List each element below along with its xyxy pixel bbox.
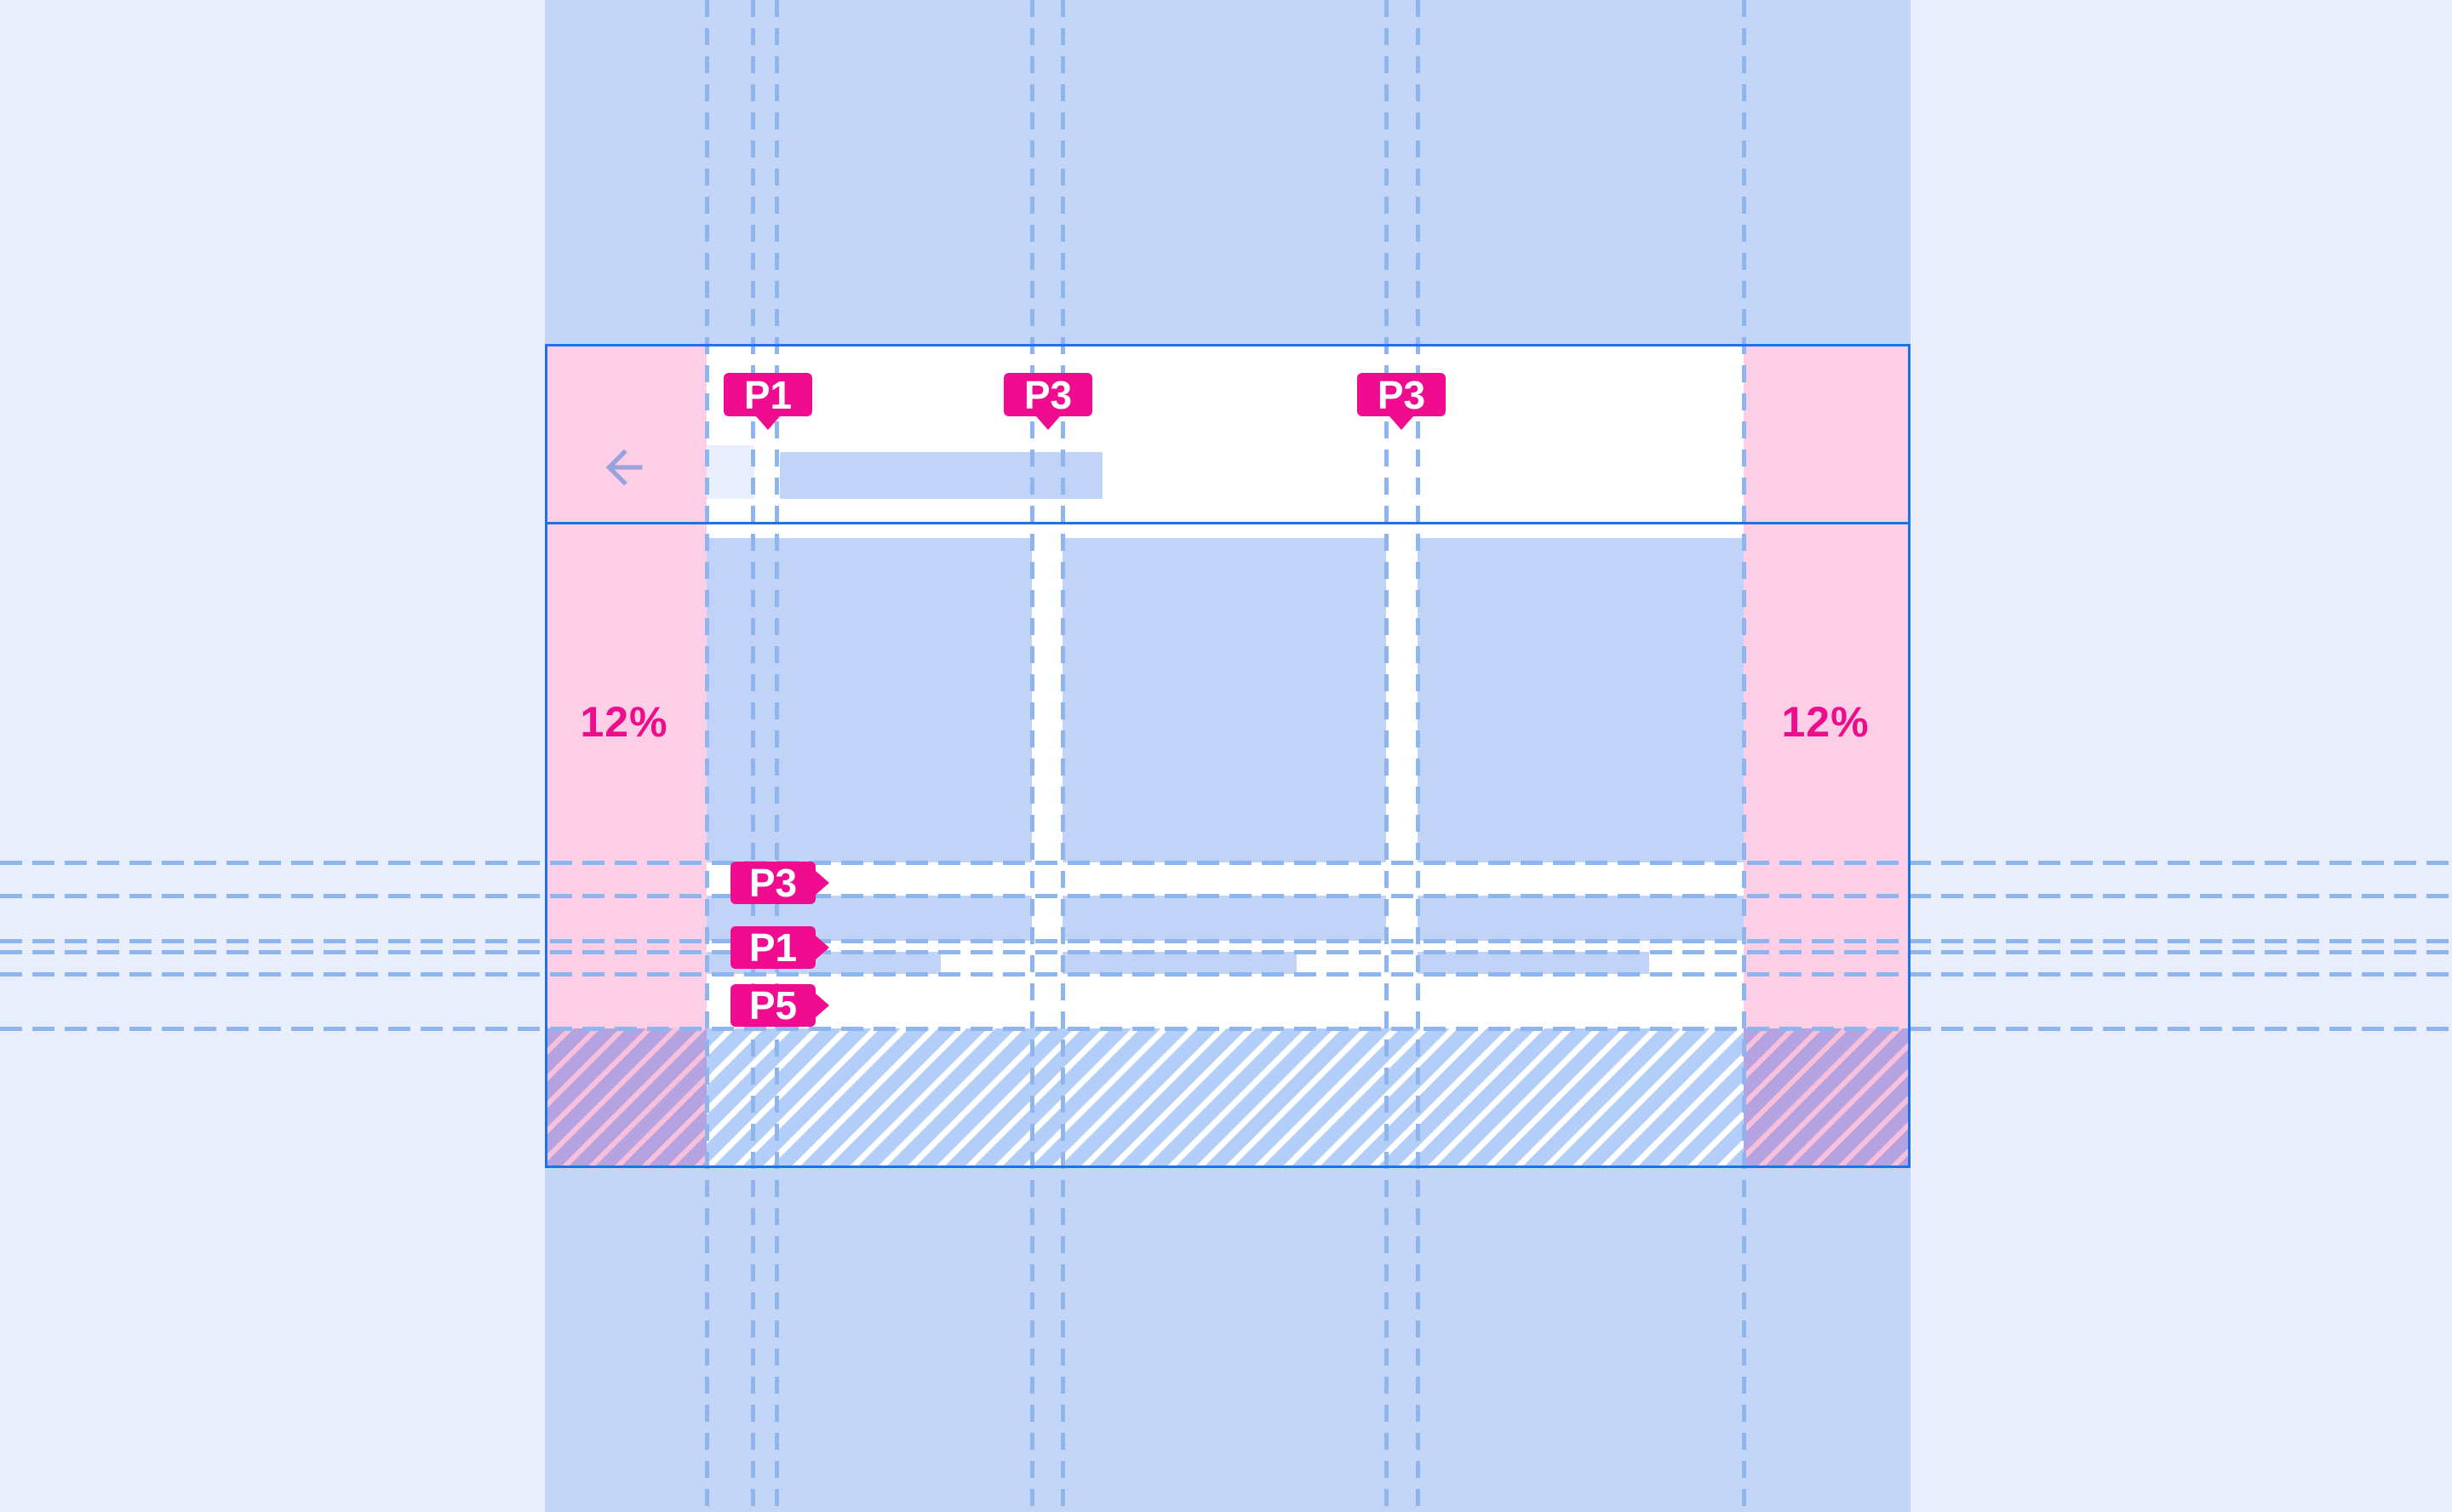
guide-line-vertical bbox=[1061, 0, 1065, 1512]
guide-line-horizontal bbox=[0, 972, 2452, 976]
text-line-placeholder-short bbox=[1418, 952, 1649, 974]
padding-chip-p3: P3 bbox=[730, 862, 816, 904]
padding-chip-p3: P3 bbox=[1357, 373, 1446, 416]
back-arrow-icon bbox=[597, 440, 651, 495]
padding-chip-p1: P1 bbox=[730, 926, 816, 969]
stage: 12% 12% P1P3P3P3P1P5 bbox=[0, 0, 2452, 1512]
guide-line-horizontal bbox=[0, 894, 2452, 898]
guide-line-vertical bbox=[1384, 0, 1389, 1512]
guide-line-vertical bbox=[751, 0, 755, 1512]
padding-chip-p5: P5 bbox=[730, 984, 816, 1027]
guide-line-vertical bbox=[775, 0, 779, 1512]
bottom-hatch-content bbox=[707, 1028, 1744, 1165]
guide-line-horizontal bbox=[0, 1027, 2452, 1031]
guide-line-vertical bbox=[1416, 0, 1420, 1512]
title-placeholder-bar bbox=[780, 452, 1103, 499]
left-margin-percent-label: 12% bbox=[560, 692, 688, 752]
card-placeholder-3 bbox=[1418, 538, 1744, 862]
guide-line-horizontal bbox=[0, 861, 2452, 865]
bottom-hatch-right-margin bbox=[1744, 1028, 1908, 1165]
text-line-placeholder bbox=[1418, 896, 1744, 941]
card-placeholder-1 bbox=[707, 538, 1032, 862]
padding-chip-p1: P1 bbox=[724, 373, 812, 416]
guide-line-vertical bbox=[1030, 0, 1034, 1512]
appbar-divider-line bbox=[547, 522, 1908, 524]
text-line-placeholder-short bbox=[1063, 952, 1297, 974]
card-placeholder-2 bbox=[1063, 538, 1386, 862]
bottom-hatch-left-margin bbox=[547, 1028, 707, 1165]
padding-chip-p3: P3 bbox=[1004, 373, 1092, 416]
nav-icon-placeholder bbox=[707, 445, 754, 499]
guide-line-horizontal bbox=[0, 939, 2452, 943]
guide-line-vertical bbox=[705, 0, 709, 1512]
right-margin-percent-label: 12% bbox=[1762, 692, 1889, 752]
guide-line-vertical bbox=[1742, 0, 1746, 1512]
text-line-placeholder bbox=[1063, 896, 1386, 941]
guide-line-horizontal bbox=[0, 950, 2452, 954]
